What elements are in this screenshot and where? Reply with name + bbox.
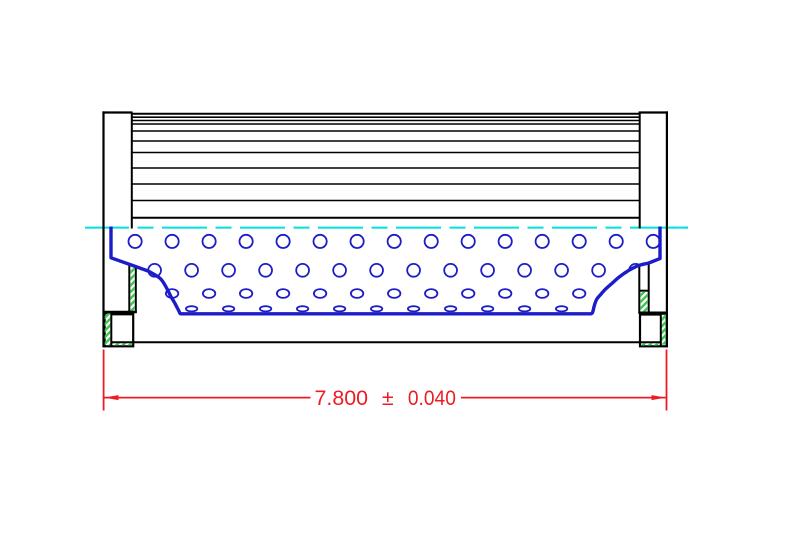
svg-text:0.040: 0.040: [408, 386, 456, 410]
svg-text:7.800: 7.800: [315, 386, 369, 410]
svg-text:±: ±: [382, 386, 394, 410]
